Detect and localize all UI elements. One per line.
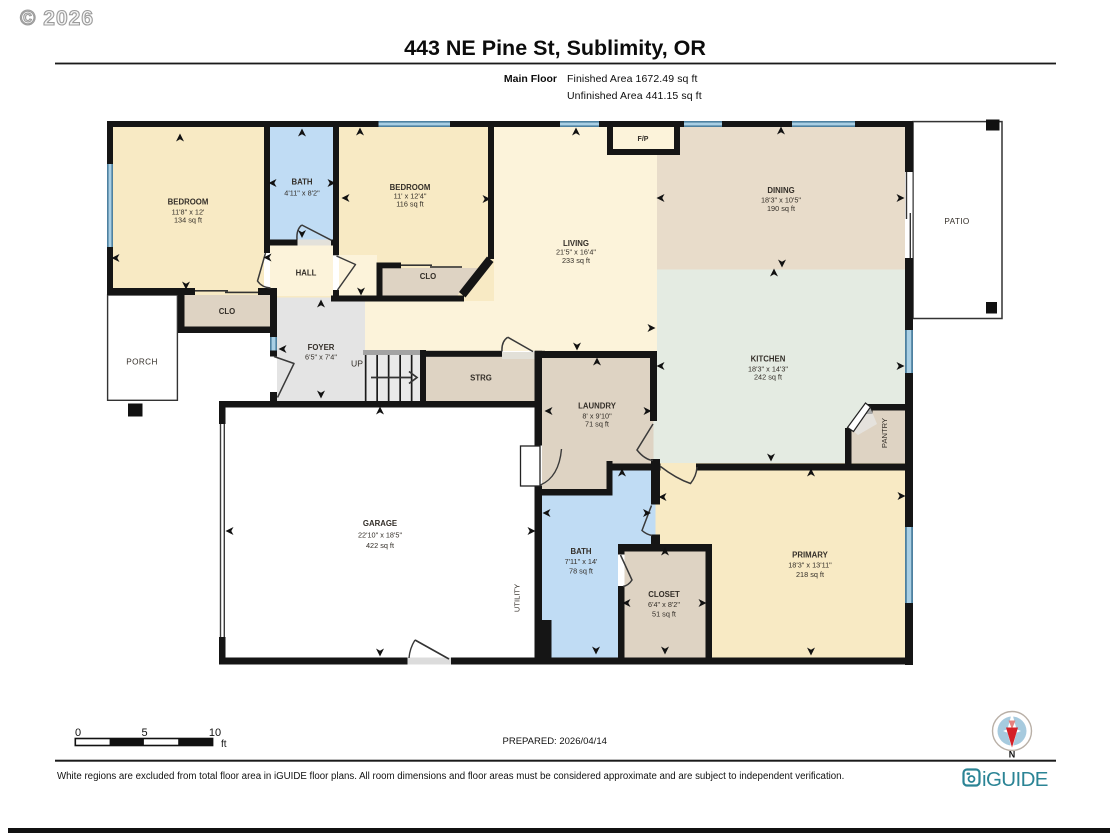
svg-text:PORCH: PORCH [126, 358, 158, 367]
svg-text:PRIMARY: PRIMARY [792, 551, 828, 560]
svg-text:443 NE Pine St, Sublimity, OR: 443 NE Pine St, Sublimity, OR [404, 36, 706, 60]
svg-text:GARAGE: GARAGE [363, 519, 397, 528]
svg-text:0: 0 [75, 727, 81, 739]
svg-text:242 sq ft: 242 sq ft [754, 373, 782, 382]
svg-text:BATH: BATH [291, 178, 312, 187]
svg-text:PATIO: PATIO [944, 217, 969, 226]
svg-text:STRG: STRG [470, 374, 492, 383]
svg-text:Main Floor: Main Floor [504, 73, 557, 85]
svg-text:ft: ft [221, 739, 227, 750]
svg-text:F/P: F/P [638, 136, 649, 143]
svg-text:FOYER: FOYER [308, 343, 335, 352]
svg-text:PANTRY: PANTRY [880, 418, 889, 448]
svg-text:iGUIDE: iGUIDE [982, 768, 1048, 791]
svg-text:Unfinished Area 441.15 sq ft: Unfinished Area 441.15 sq ft [567, 90, 702, 102]
svg-text:LAUNDRY: LAUNDRY [578, 402, 617, 411]
svg-text:CLOSET: CLOSET [648, 590, 680, 599]
svg-text:78 sq ft: 78 sq ft [569, 567, 593, 576]
svg-text:Finished Area 1672.49 sq ft: Finished Area 1672.49 sq ft [567, 73, 698, 85]
svg-text:UTILITY: UTILITY [513, 584, 522, 612]
svg-text:4'11" x 8'2": 4'11" x 8'2" [284, 189, 320, 198]
svg-text:71 sq ft: 71 sq ft [585, 420, 609, 429]
svg-text:KITCHEN: KITCHEN [751, 355, 786, 364]
svg-text:White regions are excluded fro: White regions are excluded from total fl… [57, 771, 844, 782]
svg-text:10: 10 [209, 727, 221, 739]
svg-text:18'3" x 13'11": 18'3" x 13'11" [788, 561, 832, 570]
svg-text:CLO: CLO [219, 307, 235, 316]
svg-text:DINING: DINING [767, 186, 794, 195]
svg-text:6'5" x 7'4": 6'5" x 7'4" [305, 353, 337, 362]
svg-text:6'4" x 8'2": 6'4" x 8'2" [648, 600, 680, 609]
svg-text:5: 5 [141, 727, 147, 739]
svg-text:N: N [1009, 750, 1016, 760]
svg-text:116 sq ft: 116 sq ft [396, 200, 423, 209]
svg-text:CLO: CLO [420, 272, 436, 281]
svg-text:218 sq ft: 218 sq ft [796, 570, 824, 579]
svg-text:422 sq ft: 422 sq ft [366, 541, 394, 550]
svg-text:233 sq ft: 233 sq ft [562, 256, 590, 265]
svg-text:BATH: BATH [570, 547, 591, 556]
svg-text:HALL: HALL [296, 269, 317, 278]
svg-text:51 sq ft: 51 sq ft [652, 610, 676, 619]
svg-text:22'10" x 18'5": 22'10" x 18'5" [358, 531, 402, 540]
svg-text:BEDROOM: BEDROOM [168, 198, 209, 207]
svg-text:190 sq ft: 190 sq ft [767, 204, 795, 213]
svg-text:7'11" x 14': 7'11" x 14' [565, 557, 598, 566]
svg-text:UP: UP [351, 359, 363, 369]
svg-text:134 sq ft: 134 sq ft [174, 216, 202, 225]
svg-text:PREPARED: 2026/04/14: PREPARED: 2026/04/14 [503, 736, 607, 747]
svg-text:© 2026: © 2026 [20, 7, 94, 30]
